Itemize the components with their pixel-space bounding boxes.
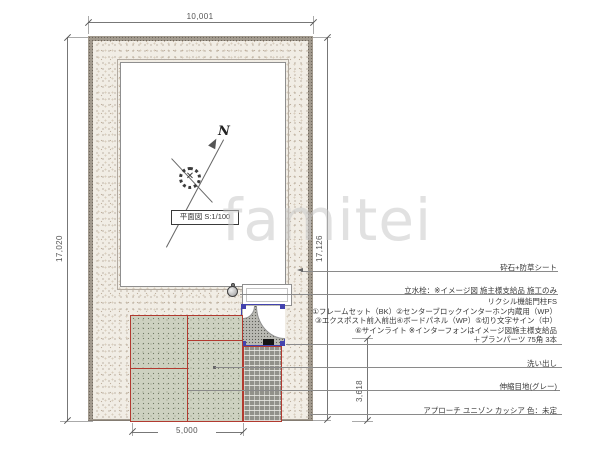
function-gate-post bbox=[263, 339, 274, 345]
dim-site-width: 10,001 bbox=[150, 12, 250, 21]
expansion-joint-horizontal-right bbox=[187, 340, 243, 341]
gate-frame-post bbox=[280, 304, 285, 309]
annotation-approach: アプローチ ユニゾン カッシア 色：未定 bbox=[423, 405, 557, 416]
expansion-joint-vertical bbox=[187, 315, 188, 422]
dim-site-height-left: 17,020 bbox=[55, 198, 64, 262]
dim-approach-length: 3,618 bbox=[355, 358, 364, 402]
dim-extension bbox=[352, 338, 373, 339]
water-tap-icon bbox=[227, 286, 238, 297]
plan-title: 平面図 S:1/100 bbox=[171, 210, 239, 225]
annotation-gravel: 砕石+防草シート bbox=[500, 262, 557, 273]
north-label: N bbox=[218, 124, 230, 139]
north-compass-icon: ✕ bbox=[179, 167, 201, 189]
leader-washout bbox=[215, 367, 562, 368]
dim-paving-width: 5,000 bbox=[158, 426, 216, 435]
annotation-expansion-joint: 伸縮目地(グレー) bbox=[500, 381, 558, 392]
site-plan-drawing: ✕ N 平面図 S:1/100 10,001 17,020 17,126 3,6… bbox=[0, 0, 600, 450]
gate-swing-arc bbox=[256, 306, 285, 339]
annotation-washout: 洗い出し bbox=[527, 358, 557, 369]
porch bbox=[242, 284, 292, 306]
approach-paving bbox=[243, 346, 282, 422]
porch-inner-line bbox=[246, 288, 288, 302]
water-tap-handle-icon bbox=[231, 283, 235, 287]
gate-frame-post bbox=[241, 304, 246, 309]
dim-extension bbox=[67, 37, 88, 38]
dim-extension bbox=[313, 16, 314, 34]
annotation-gate-post-5: ＋プランパーツ 75角 3本 bbox=[473, 334, 557, 345]
dim-extension bbox=[313, 420, 331, 421]
annotation-water-tap: 立水栓：※イメージ図 施主様支給品 施工のみ bbox=[404, 285, 557, 296]
entrance-gate-area bbox=[241, 304, 285, 346]
dim-line-approach bbox=[367, 338, 368, 421]
dim-line-right bbox=[327, 37, 328, 420]
dim-site-height-right: 17,126 bbox=[315, 198, 324, 262]
leader-arrow-icon bbox=[297, 268, 303, 272]
expansion-joint-horizontal-left bbox=[130, 368, 187, 369]
dim-line-left bbox=[67, 37, 68, 421]
dim-extension bbox=[88, 16, 89, 34]
building-outline bbox=[120, 62, 286, 287]
dim-extension bbox=[352, 421, 373, 422]
dim-line-top bbox=[88, 22, 313, 23]
